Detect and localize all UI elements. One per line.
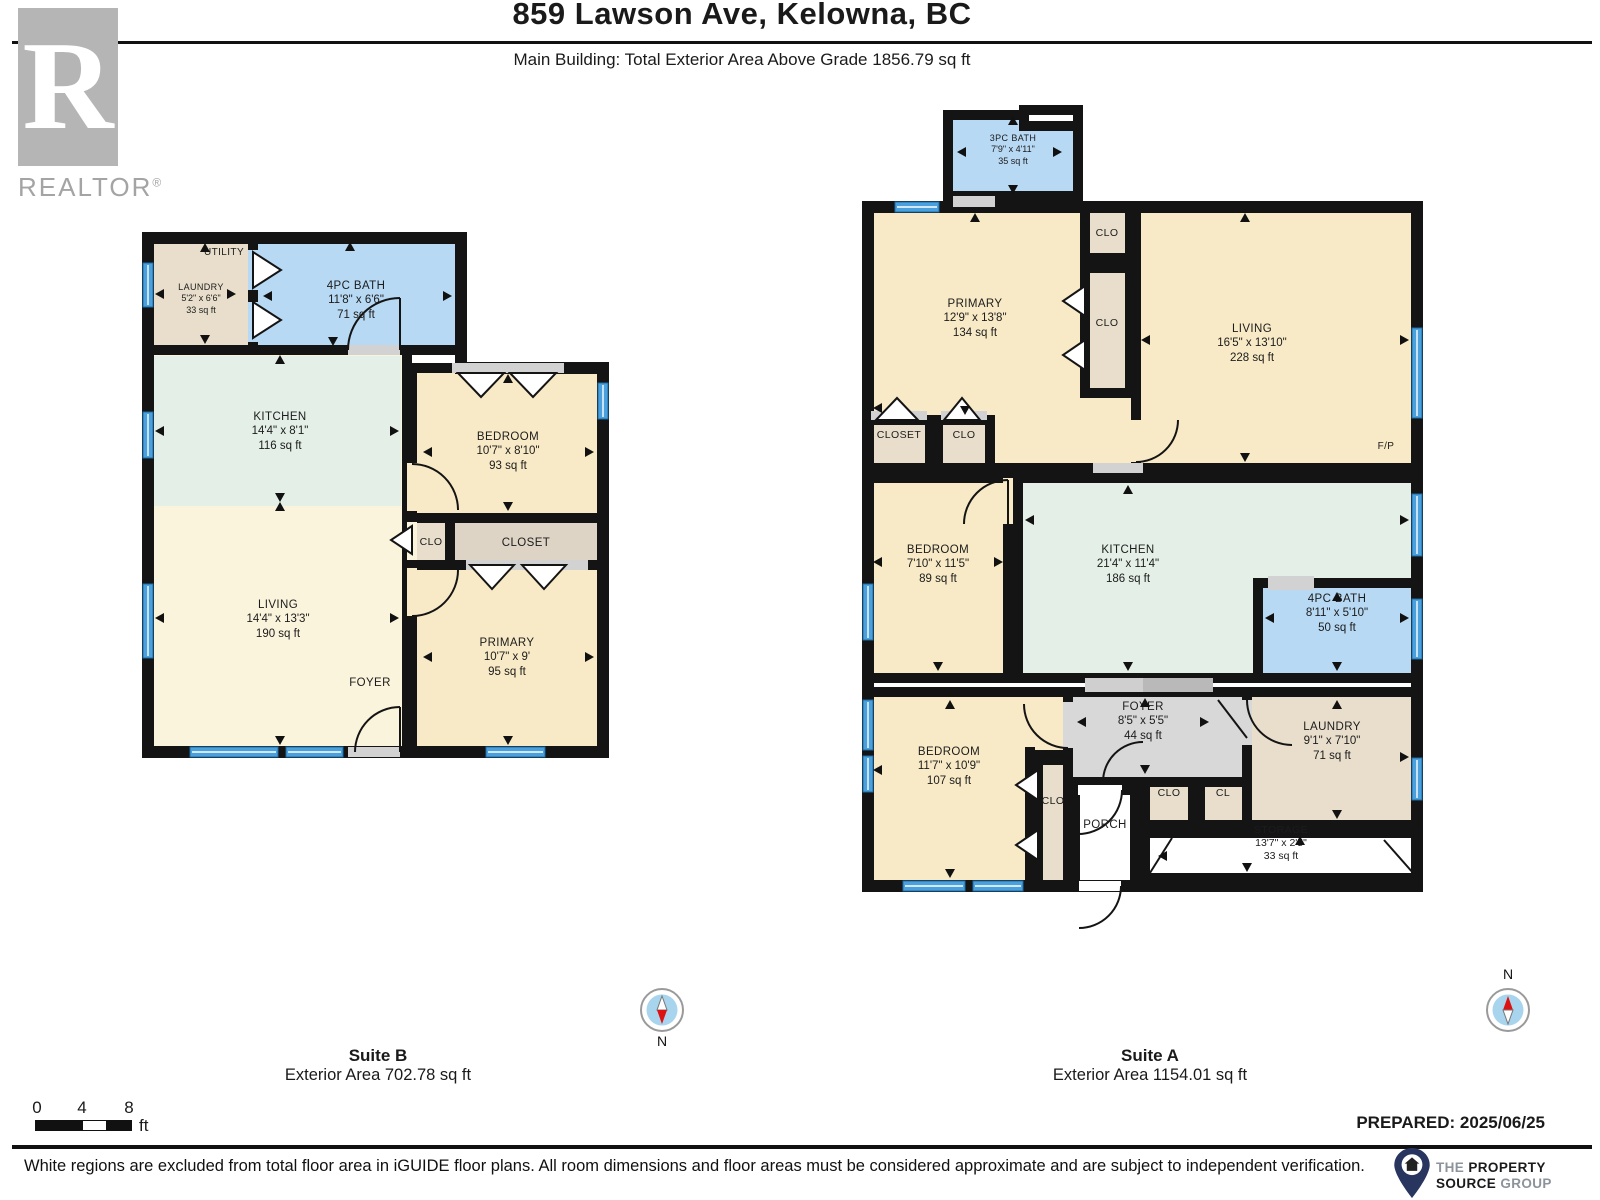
direction-arrow-icon xyxy=(423,652,432,662)
realtor-r-glyph: R xyxy=(23,24,114,150)
direction-arrow-icon xyxy=(1158,851,1167,861)
room-label-suite_b-living: LIVING14'4" x 13'3"190 sq ft xyxy=(246,598,309,641)
page-title: 859 Lawson Ave, Kelowna, BC xyxy=(512,0,971,32)
direction-arrow-icon xyxy=(1008,116,1018,125)
scale-tick-8: 8 xyxy=(124,1098,133,1118)
direction-arrow-icon xyxy=(1400,515,1409,525)
room-label-suite_a-closet: CLOSET xyxy=(877,429,921,442)
map-pin-icon xyxy=(1394,1148,1430,1198)
room-label-suite_b-laundry: LAUNDRY5'2" x 6'6"33 sq ft xyxy=(178,282,224,316)
suite-b-area: Exterior Area 702.78 sq ft xyxy=(285,1066,471,1085)
direction-arrow-icon xyxy=(443,291,452,301)
direction-arrow-icon xyxy=(873,765,882,775)
room-shape-bedroom-bot xyxy=(868,692,1030,886)
room-shape-vestibule xyxy=(1085,393,1136,468)
direction-arrow-icon xyxy=(155,426,164,436)
direction-arrow-icon xyxy=(1077,717,1086,727)
direction-arrow-icon xyxy=(1123,662,1133,671)
footer-divider xyxy=(12,1145,1592,1149)
direction-arrow-icon xyxy=(585,447,594,457)
direction-arrow-icon xyxy=(155,289,164,299)
room-label-suite_a-clo_small: CLO xyxy=(1158,787,1181,800)
room-label-suite_b-bedroom: BEDROOM10'7" x 8'10"93 sq ft xyxy=(476,430,539,473)
scale-bar-outline xyxy=(35,1120,132,1131)
property-source-wordmark: THE PROPERTY SOURCE GROUP xyxy=(1436,1160,1552,1191)
direction-arrow-icon xyxy=(933,662,943,671)
page-subtitle: Main Building: Total Exterior Area Above… xyxy=(513,50,970,70)
room-label-suite_a-bedroom_bot: BEDROOM11'7" x 10'9"107 sq ft xyxy=(918,745,980,788)
direction-arrow-icon xyxy=(200,335,210,344)
compass-suite-a-icon xyxy=(1484,986,1532,1034)
direction-arrow-icon xyxy=(1400,613,1409,623)
direction-arrow-icon xyxy=(1240,453,1250,462)
room-shape-clo-mid xyxy=(1085,268,1130,393)
room-shape-closet xyxy=(868,420,930,468)
room-label-suite_a-fp: F/P xyxy=(1378,441,1395,454)
suite-a-caption: Suite A Exterior Area 1154.01 sq ft xyxy=(1053,1046,1247,1085)
realtor-logo-box: R xyxy=(18,8,118,166)
direction-arrow-icon xyxy=(1400,752,1409,762)
direction-arrow-icon xyxy=(200,243,210,252)
direction-arrow-icon xyxy=(1332,700,1342,709)
direction-arrow-icon xyxy=(1295,836,1305,845)
direction-arrow-icon xyxy=(1008,185,1018,194)
realtor-logo: R REALTOR® xyxy=(18,8,163,203)
room-label-suite_a-primary: PRIMARY12'9" x 13'8"134 sq ft xyxy=(943,297,1006,340)
room-label-suite_a-clo_top: CLO xyxy=(1096,227,1119,240)
room-label-suite_a-clo_mid: CLO xyxy=(1096,317,1119,330)
prepared-date: PREPARED: 2025/06/25 xyxy=(1356,1113,1545,1133)
room-label-suite_a-kitchen: KITCHEN21'4" x 11'4"186 sq ft xyxy=(1097,543,1159,586)
room-label-suite_a-cl: CL xyxy=(1216,787,1230,800)
room-label-suite_a-bedroom_mid: BEDROOM7'10" x 11'5"89 sq ft xyxy=(907,543,969,586)
direction-arrow-icon xyxy=(1240,213,1250,222)
direction-arrow-icon xyxy=(1200,717,1209,727)
direction-arrow-icon xyxy=(1332,810,1342,819)
compass-suite-a-north-label: N xyxy=(1503,966,1513,982)
compass-suite-b-north-label: N xyxy=(657,1033,667,1049)
direction-arrow-icon xyxy=(275,736,285,745)
suite-b-caption: Suite B Exterior Area 702.78 sq ft xyxy=(285,1046,471,1085)
direction-arrow-icon xyxy=(1400,335,1409,345)
room-label-suite_a-clo_strip: CLO xyxy=(1042,795,1065,808)
suite-a-area: Exterior Area 1154.01 sq ft xyxy=(1053,1066,1247,1085)
direction-arrow-icon xyxy=(945,869,955,878)
direction-arrow-icon xyxy=(390,426,399,436)
property-source-logo: THE PROPERTY SOURCE GROUP xyxy=(1394,1148,1552,1198)
room-label-suite_a-living: LIVING16'5" x 13'10"228 sq ft xyxy=(1217,322,1286,365)
header-divider xyxy=(12,41,1592,44)
room-label-suite_a-bath3: 3PC BATH7'9" x 4'11"35 sq ft xyxy=(990,133,1037,167)
direction-arrow-icon xyxy=(1140,765,1150,774)
direction-arrow-icon xyxy=(873,403,882,413)
direction-arrow-icon xyxy=(585,652,594,662)
direction-arrow-icon xyxy=(263,291,272,301)
direction-arrow-icon xyxy=(1141,335,1150,345)
room-label-suite_b-bath: 4PC BATH11'8" x 6'6"71 sq ft xyxy=(327,279,386,322)
direction-arrow-icon xyxy=(423,447,432,457)
scale-tick-4: 4 xyxy=(77,1098,86,1118)
direction-arrow-icon xyxy=(345,242,355,251)
direction-arrow-icon xyxy=(275,355,285,364)
room-label-suite_b-foyer: FOYER xyxy=(349,676,391,690)
direction-arrow-icon xyxy=(390,613,399,623)
direction-arrow-icon xyxy=(1332,592,1342,601)
direction-arrow-icon xyxy=(994,557,1003,567)
direction-arrow-icon xyxy=(1140,698,1150,707)
scale-tick-0: 0 xyxy=(32,1098,41,1118)
direction-arrow-icon xyxy=(1053,147,1062,157)
room-label-suite_b-closet: CLOSET xyxy=(502,536,550,550)
direction-arrow-icon xyxy=(1025,515,1034,525)
room-label-suite_b-clo: CLO xyxy=(420,536,443,549)
room-shape-clo2 xyxy=(938,420,990,468)
room-label-suite_b-kitchen: KITCHEN14'4" x 8'1"116 sq ft xyxy=(252,410,309,453)
compass-suite-b-icon xyxy=(638,986,686,1034)
direction-arrow-icon xyxy=(970,213,980,222)
direction-arrow-icon xyxy=(1265,613,1274,623)
room-shape-porch xyxy=(1075,790,1135,886)
suite-a-floorplan xyxy=(855,100,1430,935)
direction-arrow-icon xyxy=(275,502,285,511)
direction-arrow-icon xyxy=(503,374,513,383)
suite-b-name: Suite B xyxy=(285,1046,471,1066)
realtor-wordmark: REALTOR® xyxy=(18,172,163,203)
footer-disclaimer: White regions are excluded from total fl… xyxy=(24,1157,1365,1176)
room-label-suite_a-clo2: CLO xyxy=(953,429,976,442)
direction-arrow-icon xyxy=(155,613,164,623)
direction-arrow-icon xyxy=(873,557,882,567)
direction-arrow-icon xyxy=(957,147,966,157)
direction-arrow-icon xyxy=(275,493,285,502)
room-label-suite_a-laundry: LAUNDRY9'1" x 7'10"71 sq ft xyxy=(1303,720,1361,763)
direction-arrow-icon xyxy=(227,289,236,299)
floorplan-page: R REALTOR® 859 Lawson Ave, Kelowna, BC M… xyxy=(0,0,1600,1200)
direction-arrow-icon xyxy=(328,337,338,346)
direction-arrow-icon xyxy=(945,700,955,709)
direction-arrow-icon xyxy=(960,406,970,415)
room-label-suite_a-porch: PORCH xyxy=(1083,818,1127,832)
suite-a-name: Suite A xyxy=(1053,1046,1247,1066)
direction-arrow-icon xyxy=(503,736,513,745)
direction-arrow-icon xyxy=(503,502,513,511)
direction-arrow-icon xyxy=(1123,485,1133,494)
room-shape-bed-ext xyxy=(1030,692,1068,755)
direction-arrow-icon xyxy=(1332,662,1342,671)
direction-arrow-icon xyxy=(1242,863,1252,872)
scale-unit: ft xyxy=(139,1116,148,1136)
room-shape-bath3-notch xyxy=(1024,110,1078,126)
room-label-suite_b-primary: PRIMARY10'7" x 9'95 sq ft xyxy=(480,636,535,679)
